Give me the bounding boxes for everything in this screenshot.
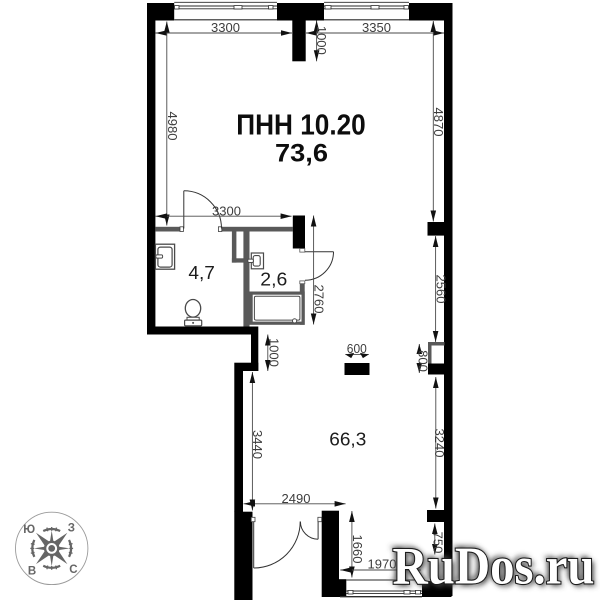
svg-text:2760: 2760 bbox=[311, 285, 326, 314]
svg-text:600: 600 bbox=[347, 341, 367, 356]
svg-text:4980: 4980 bbox=[165, 112, 180, 141]
svg-text:4,7: 4,7 bbox=[188, 262, 215, 283]
svg-text:3300: 3300 bbox=[212, 203, 241, 218]
svg-text:3440: 3440 bbox=[250, 430, 265, 459]
svg-text:1000: 1000 bbox=[266, 338, 281, 367]
svg-text:ПНН 10.20: ПНН 10.20 bbox=[236, 110, 366, 142]
svg-text:В: В bbox=[28, 565, 36, 577]
svg-text:2,6: 2,6 bbox=[260, 268, 287, 289]
svg-text:Ю: Ю bbox=[23, 524, 35, 536]
svg-text:3350: 3350 bbox=[362, 20, 391, 35]
svg-text:3300: 3300 bbox=[211, 20, 240, 35]
svg-text:800: 800 bbox=[416, 350, 431, 372]
svg-text:73,6: 73,6 bbox=[275, 140, 328, 168]
svg-text:З: З bbox=[68, 523, 75, 535]
svg-text:3240: 3240 bbox=[432, 429, 447, 458]
svg-text:1660: 1660 bbox=[350, 535, 365, 564]
svg-text:66,3: 66,3 bbox=[329, 428, 366, 449]
svg-text:С: С bbox=[69, 564, 77, 576]
svg-text:2560: 2560 bbox=[433, 275, 448, 304]
svg-text:1000: 1000 bbox=[314, 26, 329, 55]
svg-text:4870: 4870 bbox=[431, 108, 446, 137]
svg-text:2490: 2490 bbox=[282, 491, 311, 506]
svg-text:RuDos.ru: RuDos.ru bbox=[393, 538, 595, 596]
